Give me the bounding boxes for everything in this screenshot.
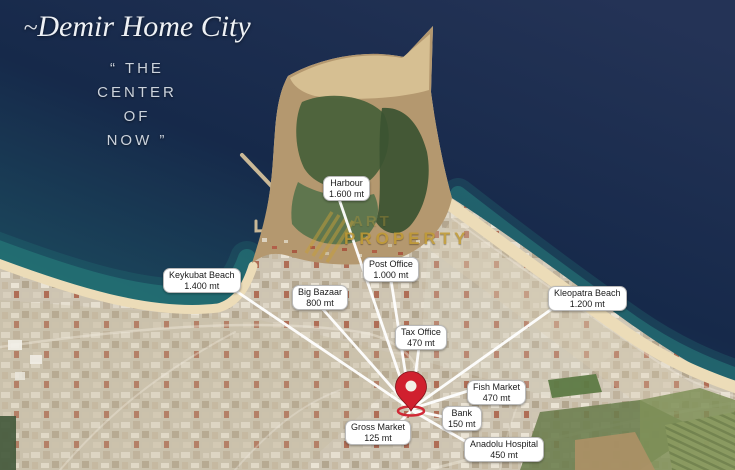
map-label-gross-market: Gross Market 125 mt xyxy=(345,420,411,445)
location-name: Keykubat Beach xyxy=(169,270,235,281)
location-name: Big Bazaar xyxy=(298,287,342,298)
location-name: Harbour xyxy=(329,178,364,189)
location-name: Post Office xyxy=(369,259,413,270)
location-name: Bank xyxy=(448,408,476,419)
location-distance: 470 mt xyxy=(401,338,441,349)
map-label-big-bazaar: Big Bazaar 800 mt xyxy=(292,285,348,310)
location-distance: 150 mt xyxy=(448,419,476,430)
satellite-map xyxy=(0,0,735,470)
location-distance: 125 mt xyxy=(351,433,405,444)
map-label-bank: Bank 150 mt xyxy=(442,406,482,431)
location-distance: 800 mt xyxy=(298,298,342,309)
map-label-harbour: Harbour 1.600 mt xyxy=(323,176,370,201)
location-pin-icon xyxy=(396,372,427,416)
location-distance: 1.400 mt xyxy=(169,281,235,292)
location-name: Fish Market xyxy=(473,382,520,393)
location-name: Anadolu Hospital xyxy=(470,439,538,450)
map-label-fish-market: Fish Market 470 mt xyxy=(467,380,526,405)
map-label-post-office: Post Office 1.000 mt xyxy=(363,257,419,282)
promo-map: ~Demir Home City “ THE CENTER OF NOW ” A… xyxy=(0,0,735,470)
forest-patch xyxy=(296,96,389,188)
location-distance: 1.200 mt xyxy=(554,299,621,310)
location-distance: 1.000 mt xyxy=(369,270,413,281)
location-distance: 470 mt xyxy=(473,393,520,404)
location-name: Kleopatra Beach xyxy=(554,288,621,299)
location-name: Gross Market xyxy=(351,422,405,433)
map-label-kleopatra-beach: Kleopatra Beach 1.200 mt xyxy=(548,286,627,311)
location-distance: 1.600 mt xyxy=(329,189,364,200)
map-label-tax-office: Tax Office 470 mt xyxy=(395,325,447,350)
location-name: Tax Office xyxy=(401,327,441,338)
map-label-keykubat-beach: Keykubat Beach 1.400 mt xyxy=(163,268,241,293)
location-distance: 450 mt xyxy=(470,450,538,461)
map-label-anadolu-hospital: Anadolu Hospital 450 mt xyxy=(464,437,544,462)
